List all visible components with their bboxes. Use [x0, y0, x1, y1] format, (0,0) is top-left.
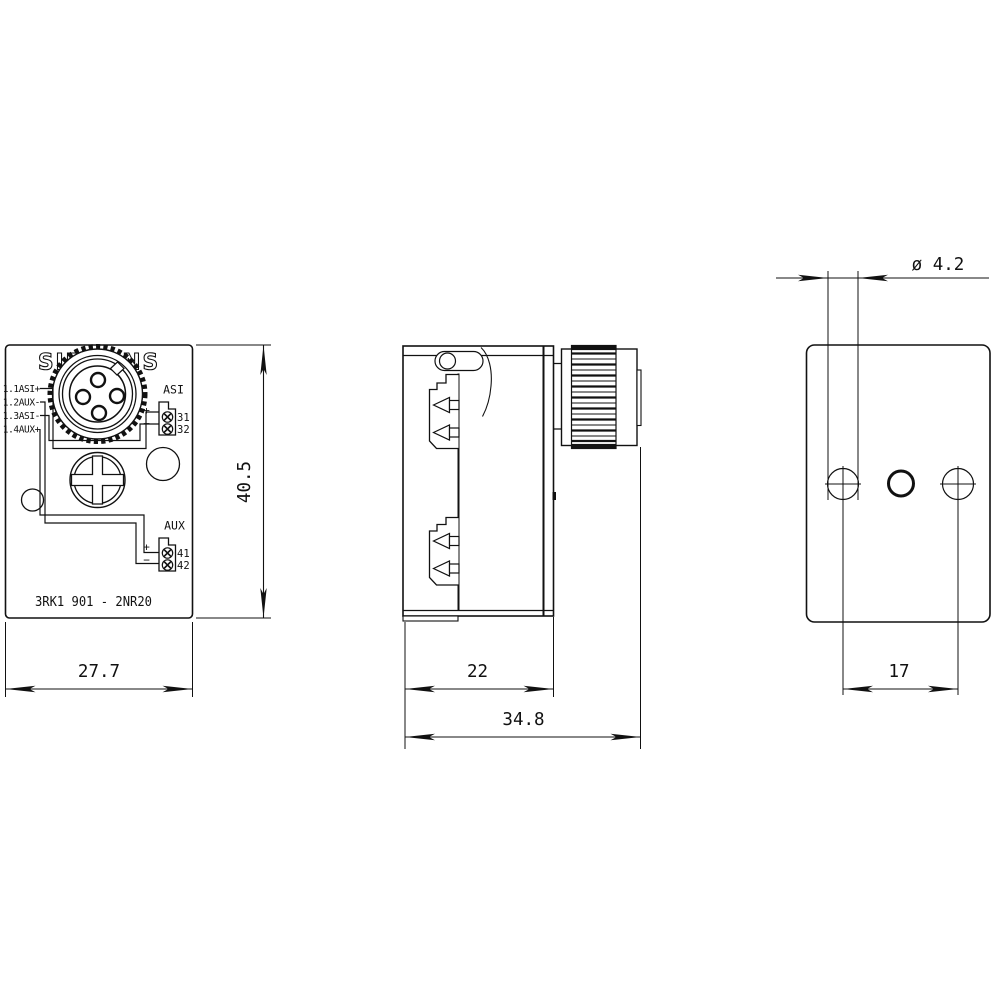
screw-body [450, 428, 460, 437]
aux-group-label: AUX [164, 519, 185, 533]
seal-mark [553, 492, 557, 500]
front-width-dim-label: 27.7 [78, 662, 120, 682]
aux-plus-sign: + [143, 541, 150, 554]
pin-label-1: 1.1ASI+ [3, 384, 41, 395]
aux-minus-sign: − [143, 554, 150, 567]
asi-minus-sign: − [143, 417, 150, 430]
knurl-band-bottom [572, 444, 617, 449]
asi-plus-sign: + [143, 404, 150, 417]
m12-connector [50, 347, 145, 442]
asi-group-label: ASI [163, 383, 184, 397]
connector-outer-circle [53, 349, 143, 439]
back-view [807, 345, 991, 695]
connector-pin-4 [92, 406, 106, 420]
width-extension-lines [6, 622, 193, 697]
screw-body [450, 401, 460, 410]
terminal-shroud-base [403, 616, 458, 621]
front-height-dim-label: 40.5 [235, 461, 255, 503]
front-view: SIEMENS [3, 345, 193, 618]
pin-label-2: 1.2AUX- [3, 398, 40, 409]
terminal-42-label: 42 [177, 560, 190, 572]
connector-pin-2 [76, 390, 90, 404]
addressing-socket [70, 453, 125, 508]
pin-label-3: 1.3ASI- [3, 411, 40, 422]
side-housing-outline [403, 346, 554, 616]
side-view [403, 346, 641, 622]
screw-body [450, 537, 460, 546]
connector-neck [554, 364, 562, 430]
connector-tip-ring [637, 370, 641, 426]
hole-diameter-dim-label: ø 4.2 [912, 255, 965, 275]
connector-pin-3 [110, 389, 124, 403]
hole-spacing-dim-label: 17 [888, 662, 909, 682]
pin-label-4: 1.4AUX+ [3, 425, 41, 436]
drawing-canvas: SIEMENS [0, 0, 1000, 1000]
connector-pin-1 [91, 373, 105, 387]
center-hole [889, 471, 914, 496]
terminal-41-label: 41 [177, 548, 190, 560]
technical-drawing: SIEMENS [0, 0, 1000, 1000]
body-depth-dim-label: 22 [467, 662, 488, 682]
height-extension-lines [196, 345, 271, 618]
terminal-31-label: 31 [177, 412, 190, 424]
connector-side-profile [554, 346, 642, 449]
part-number-label: 3RK1 901 - 2NR20 [35, 594, 152, 610]
total-depth-dim-label: 34.8 [502, 710, 544, 730]
screw-body [450, 564, 460, 573]
knurl-band-top [572, 346, 617, 351]
terminal-32-label: 32 [177, 424, 190, 436]
